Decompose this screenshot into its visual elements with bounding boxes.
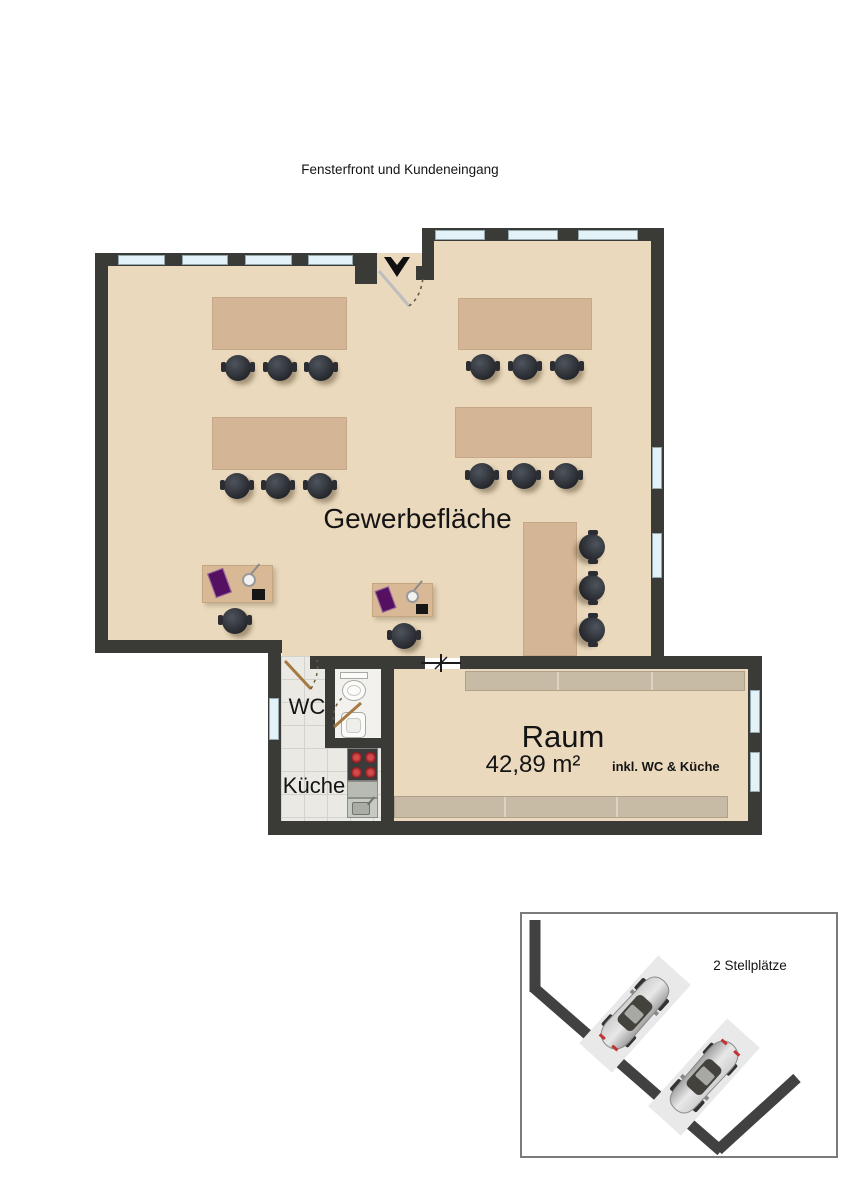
office-chair: [512, 354, 538, 380]
office-chair: [470, 354, 496, 380]
shelf-cell: [506, 797, 617, 817]
office-chair: [579, 575, 605, 601]
window: [652, 533, 662, 578]
wall-right: [651, 228, 664, 658]
faucet-icon: [367, 797, 375, 806]
office-chair: [267, 355, 293, 381]
window: [652, 447, 662, 489]
burner-icon: [351, 752, 362, 763]
wc-label: WC: [284, 694, 330, 720]
keyboard-icon: [416, 604, 428, 614]
window: [118, 255, 165, 265]
office-chair: [222, 608, 248, 634]
window: [308, 255, 353, 265]
office-chair: [469, 463, 495, 489]
window: [435, 230, 485, 240]
laptop-icon: [375, 586, 397, 613]
desk-lamp-icon: [242, 573, 256, 587]
wall-entrance-post-right-foot: [416, 266, 434, 280]
kitchen-label: Küche: [279, 773, 349, 799]
meeting-table: [455, 407, 592, 458]
wall-toilet-bottom: [325, 738, 391, 748]
office-chair: [391, 623, 417, 649]
wall-raum-right: [748, 656, 762, 835]
office-chair: [579, 534, 605, 560]
shelf-cell: [618, 797, 727, 817]
counter-table: [523, 522, 577, 656]
raum-area-label: 42,89 m²: [455, 751, 611, 779]
meeting-table: [212, 417, 347, 470]
stove-icon: [347, 748, 378, 781]
raum-threshold-diag: [435, 657, 447, 669]
office-chair: [225, 355, 251, 381]
shelf-cell: [653, 672, 744, 690]
office-chair: [511, 463, 537, 489]
raum-area-suffix: inkl. WC & Küche: [612, 759, 722, 774]
office-chair: [307, 473, 333, 499]
window: [269, 698, 279, 740]
wall-bottom-left: [95, 640, 282, 653]
window: [508, 230, 558, 240]
toilet-icon: [342, 680, 366, 701]
raum-label: Raum: [470, 719, 656, 755]
shelf-cell: [466, 672, 559, 690]
burner-icon: [365, 752, 376, 763]
burner-icon: [365, 767, 376, 778]
toilet-tank-icon: [340, 672, 368, 679]
main-room-label: Gewerbefläche: [300, 503, 535, 535]
window: [182, 255, 228, 265]
wall-divider-b: [460, 656, 762, 669]
parking-wall-diagonal-right: [718, 1078, 797, 1150]
wall-left: [95, 253, 108, 653]
kitchen-sink-icon: [347, 798, 378, 818]
burner-icon: [351, 767, 362, 778]
washbasin-icon: [341, 712, 366, 738]
window: [750, 752, 760, 792]
window: [750, 690, 760, 733]
keyboard-icon: [252, 589, 265, 600]
parking-inset: 2 Stellplätze: [520, 912, 838, 1158]
shelf-row-top: [465, 671, 745, 691]
wall-block-bottom: [268, 821, 762, 835]
main-room-floor-top: [434, 241, 651, 271]
office-chair: [265, 473, 291, 499]
desk-lamp-icon: [406, 590, 419, 603]
parking-label: 2 Stellplätze: [680, 958, 820, 973]
laptop-icon: [207, 568, 232, 598]
window: [245, 255, 292, 265]
meeting-table: [212, 297, 347, 350]
shelf-row-bottom: [394, 796, 728, 818]
meeting-table: [458, 298, 592, 350]
top-annotation: Fensterfront und Kundeneingang: [250, 162, 550, 177]
office-chair: [224, 473, 250, 499]
work-desk: [372, 583, 433, 617]
office-chair: [308, 355, 334, 381]
office-chair: [579, 617, 605, 643]
wall-entrance-post-left: [355, 253, 377, 284]
office-chair: [553, 463, 579, 489]
shelf-cell: [395, 797, 506, 817]
window: [578, 230, 638, 240]
office-chair: [554, 354, 580, 380]
floorplan-page: Fensterfront und Kundeneingang: [0, 0, 848, 1200]
shelf-cell: [559, 672, 652, 690]
work-desk: [202, 565, 273, 603]
kitchen-counter: [347, 781, 378, 798]
